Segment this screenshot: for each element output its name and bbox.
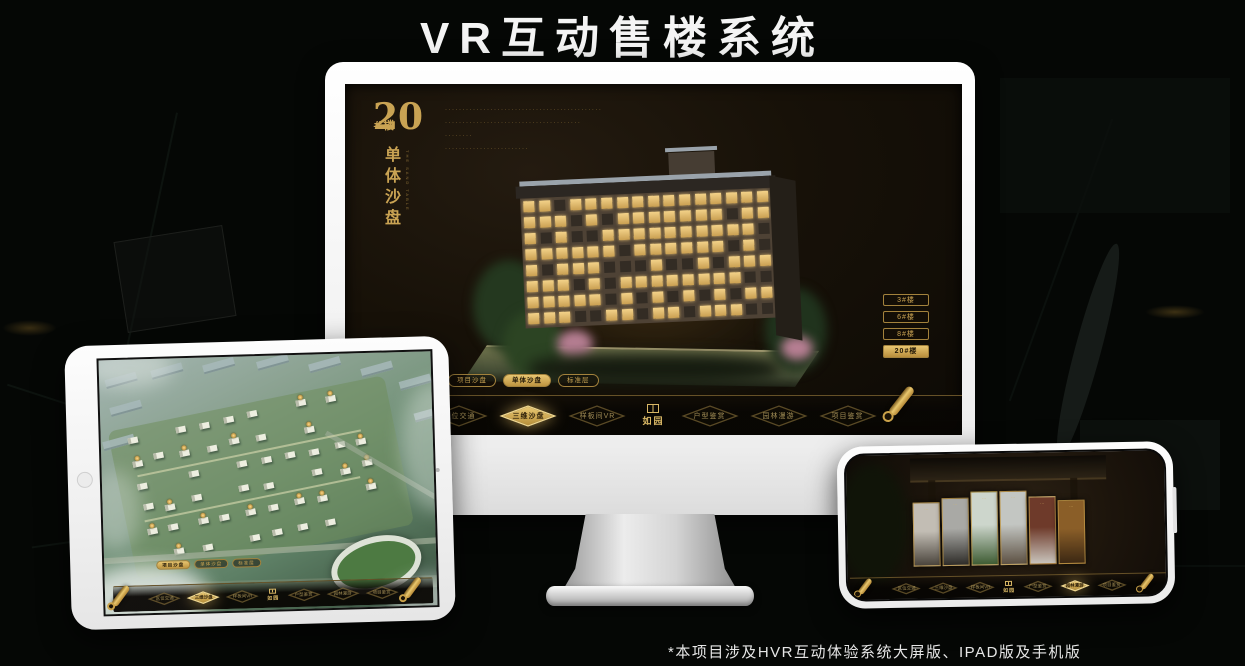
side-button[interactable] <box>1172 487 1177 533</box>
residential-building <box>236 460 247 468</box>
residential-building <box>127 437 138 445</box>
window <box>653 307 664 318</box>
residential-building <box>325 519 336 527</box>
window <box>634 244 645 255</box>
nav-item[interactable]: 三维沙盘 <box>185 588 222 607</box>
nav-item[interactable]: 户型鉴赏 <box>285 585 322 604</box>
window <box>525 233 536 244</box>
window <box>542 264 553 275</box>
poster: VR互动售楼系统 20#楼 单体沙盘 THE SAND TABLE ······… <box>0 0 1245 666</box>
industrial-building <box>360 361 393 378</box>
window <box>663 195 674 206</box>
bg-watermark <box>1145 305 1205 319</box>
window <box>585 198 596 209</box>
window <box>711 209 722 220</box>
residential-building <box>198 517 209 525</box>
residential-building <box>144 503 155 511</box>
nav-item[interactable]: 区位交通 <box>146 589 183 608</box>
window <box>601 198 612 209</box>
window <box>664 211 675 222</box>
nav-item-label: 园林漫游 <box>334 590 352 597</box>
nav-item[interactable]: 样板间VR <box>963 579 998 596</box>
nav-item-label: 三维沙盘 <box>512 411 544 421</box>
building-render <box>465 142 855 397</box>
window <box>746 303 757 314</box>
window <box>589 278 600 289</box>
footnote: *本项目涉及HVR互动体验系统大屏版、IPAD版及手机版 <box>668 641 1081 662</box>
window <box>588 246 599 257</box>
panel-caption: ··· <box>1030 500 1055 505</box>
window <box>760 255 771 266</box>
industrial-building <box>308 356 341 373</box>
nav-item[interactable]: 三维沙盘 <box>496 401 560 431</box>
residential-building <box>308 449 319 457</box>
window <box>665 227 676 238</box>
residential-building <box>164 503 175 511</box>
window <box>757 191 768 202</box>
residential-building <box>137 483 148 491</box>
nav-item[interactable]: 区位交通 <box>889 580 924 597</box>
nav-item-label: 户型鉴赏 <box>694 411 726 421</box>
nav-item[interactable]: 户型鉴赏 <box>1020 578 1055 595</box>
window <box>540 232 551 243</box>
nav-item-label: 项目鉴赏 <box>1103 582 1121 588</box>
sand-table-subtitle-en: THE SAND TABLE <box>405 150 410 260</box>
window <box>573 263 584 274</box>
monitor-stand-base <box>546 586 754 606</box>
panel-caption: ··· <box>971 495 996 500</box>
residential-building <box>191 494 202 502</box>
residential-building <box>325 395 336 403</box>
residential-building <box>153 452 164 460</box>
window <box>622 309 633 320</box>
sub-tab[interactable]: 标准层 <box>232 558 261 568</box>
equipment-scene[interactable]: ··· <box>942 498 970 566</box>
brand-logo-text: 如园 <box>642 414 664 427</box>
residential-building <box>284 451 295 459</box>
residential-building <box>317 495 328 503</box>
window <box>650 243 661 254</box>
window <box>681 242 692 253</box>
window <box>666 243 677 254</box>
window <box>543 296 554 307</box>
window <box>742 207 753 218</box>
nav-item-label: 户型鉴赏 <box>1029 583 1047 589</box>
bg-plaque <box>113 225 236 333</box>
residential-building <box>263 482 274 490</box>
brand-seal-icon <box>647 404 659 413</box>
window <box>527 281 538 292</box>
window <box>620 277 631 288</box>
phone-device: ·················· 区位交通三维沙盘样板间VR如园户型鉴赏园林… <box>837 441 1176 609</box>
brand-logo-text: 如园 <box>1003 586 1015 593</box>
window <box>696 225 707 236</box>
description-line: ······································· <box>445 117 675 130</box>
brand-seal-icon <box>269 589 276 594</box>
window <box>649 227 660 238</box>
residential-building <box>247 410 258 418</box>
nav-item[interactable]: 园林漫游 <box>1057 578 1092 595</box>
panel-caption: ··· <box>1000 495 1025 500</box>
window <box>727 224 738 235</box>
window <box>745 271 756 282</box>
monitor-stand <box>563 514 737 590</box>
brand-logo-text: 如园 <box>267 595 279 602</box>
residential-building <box>262 456 273 464</box>
residential-building <box>223 415 234 423</box>
residential-building <box>203 543 214 551</box>
nav-item-label: 样板间VR <box>971 584 991 590</box>
residential-building <box>168 523 179 531</box>
nav-item-label: 三维沙盘 <box>195 594 213 601</box>
window <box>684 306 695 317</box>
window <box>741 191 752 202</box>
panel-caption: ··· <box>1059 504 1084 509</box>
page-title: VR互动售楼系统 <box>0 2 1245 66</box>
window <box>588 262 599 273</box>
window <box>762 303 773 314</box>
building-button[interactable]: 3#楼 <box>883 294 929 306</box>
window <box>542 280 553 291</box>
industrial-building <box>256 353 289 370</box>
window <box>761 287 772 298</box>
window <box>651 275 662 286</box>
tablet-screen: 项目沙盘单体沙盘标准层 区位交通三维沙盘样板间VR如园户型鉴赏园林漫游项目鉴赏 <box>96 349 439 616</box>
nav-item-label: 样板间VR <box>580 411 616 421</box>
industrial-building <box>202 357 235 374</box>
window <box>744 255 755 266</box>
industrial-building <box>109 400 142 417</box>
brand-logo: 如园 <box>267 589 279 602</box>
window <box>523 201 534 212</box>
residential-building <box>365 482 376 490</box>
brand-logo: 如园 <box>642 404 664 427</box>
sub-tab[interactable]: 标准层 <box>558 374 599 387</box>
residential-building <box>147 528 158 536</box>
window <box>574 295 585 306</box>
window <box>572 247 583 258</box>
window <box>633 212 644 223</box>
cabinet-scene[interactable]: ··· <box>1058 500 1086 564</box>
window <box>712 241 723 252</box>
window <box>526 265 537 276</box>
residential-building <box>272 528 283 536</box>
window <box>682 274 693 285</box>
window <box>758 207 769 218</box>
residential-building <box>298 523 309 531</box>
window <box>637 308 648 319</box>
residential-building <box>207 445 218 453</box>
residential-building <box>175 426 186 434</box>
building-button[interactable]: 20#楼 <box>883 345 929 358</box>
window <box>680 226 691 237</box>
window <box>728 240 739 251</box>
nav-item-label: 区位交通 <box>898 586 916 592</box>
window <box>636 276 647 287</box>
window <box>652 291 663 302</box>
nav-item-label: 园林漫游 <box>1066 583 1084 589</box>
building-model <box>519 171 778 358</box>
residential-building <box>303 426 314 434</box>
window <box>697 257 708 268</box>
window <box>605 293 616 304</box>
window <box>587 230 598 241</box>
window <box>743 223 754 234</box>
window <box>618 229 629 240</box>
residential-building <box>355 438 366 446</box>
window <box>713 257 724 268</box>
main-nav-bar: 区位交通三维沙盘样板间VR如园户型鉴赏园林漫游项目鉴赏 <box>850 572 1168 602</box>
window <box>729 272 740 283</box>
window <box>527 297 538 308</box>
brand-logo: 如园 <box>1003 580 1015 593</box>
sub-tab-row: 项目沙盘单体沙盘标准层 <box>448 374 599 387</box>
window <box>617 213 628 224</box>
residential-building <box>256 434 267 442</box>
window <box>554 200 565 211</box>
window <box>603 246 614 257</box>
window <box>570 199 581 210</box>
nav-item-label: 项目鉴赏 <box>373 589 391 596</box>
window <box>571 215 582 226</box>
garden-scene[interactable]: ··· <box>970 491 998 565</box>
nav-item-label: 三维沙盘 <box>935 585 953 591</box>
window <box>731 304 742 315</box>
window <box>743 239 754 250</box>
window <box>556 232 567 243</box>
window <box>730 288 741 299</box>
window <box>726 192 737 203</box>
sub-tab[interactable]: 项目沙盘 <box>448 374 496 387</box>
phone-screen: ·················· 区位交通三维沙盘样板间VR如园户型鉴赏园林… <box>844 448 1169 602</box>
interior-scene[interactable]: ··· <box>913 502 941 566</box>
window <box>683 290 694 301</box>
window <box>559 311 570 322</box>
window <box>558 295 569 306</box>
window <box>746 287 757 298</box>
window <box>648 196 659 207</box>
window <box>557 264 568 275</box>
window <box>524 217 535 228</box>
nav-item[interactable]: 户型鉴赏 <box>678 401 742 431</box>
panel-caption: ··· <box>943 502 968 507</box>
nav-item-label: 项目鉴赏 <box>832 411 864 421</box>
tablet-device: 项目沙盘单体沙盘标准层 区位交通三维沙盘样板间VR如园户型鉴赏园林漫游项目鉴赏 <box>64 336 456 631</box>
window <box>586 214 597 225</box>
nav-item-label: 样板间VR <box>233 593 253 600</box>
description-line: ········································… <box>445 104 675 117</box>
building-marker[interactable] <box>305 421 311 427</box>
window <box>539 216 550 227</box>
camera-dot <box>436 468 440 472</box>
window <box>666 259 677 270</box>
window <box>602 214 613 225</box>
window <box>571 231 582 242</box>
window <box>682 258 693 269</box>
residential-building <box>180 449 191 457</box>
nav-item[interactable]: 园林漫游 <box>324 584 361 603</box>
building-facade <box>520 188 777 329</box>
brand-seal-icon <box>1005 580 1012 585</box>
window <box>634 228 645 239</box>
window <box>710 193 721 204</box>
window <box>528 313 539 324</box>
window <box>555 216 566 227</box>
window <box>668 291 679 302</box>
building-scene[interactable]: ··· <box>999 491 1027 565</box>
residential-building <box>219 514 230 522</box>
residential-building <box>250 534 261 542</box>
sub-tab[interactable]: 单体沙盘 <box>503 374 551 387</box>
building-number-heading: 20#楼 <box>373 96 395 138</box>
window <box>544 312 555 323</box>
window <box>617 197 628 208</box>
nav-item-label: 园林漫游 <box>763 411 795 421</box>
courtyard-scene[interactable]: ··· <box>1029 496 1057 564</box>
nav-item[interactable]: 项目鉴赏 <box>816 401 880 431</box>
residential-building <box>200 422 211 430</box>
nav-item-label: 户型鉴赏 <box>295 591 313 598</box>
window <box>699 305 710 316</box>
residential-building <box>340 467 351 475</box>
window <box>525 249 536 260</box>
nav-item[interactable]: 三维沙盘 <box>926 580 961 597</box>
window <box>715 305 726 316</box>
bg-watermark <box>2 320 57 336</box>
window <box>695 209 706 220</box>
sub-tab[interactable]: 项目沙盘 <box>156 560 190 570</box>
nav-item[interactable]: 项目鉴赏 <box>1094 577 1129 594</box>
residential-building <box>188 470 199 478</box>
sand-table-title: 单体沙盘 <box>379 146 403 266</box>
panel-caption: ··· <box>914 506 939 511</box>
window <box>667 275 678 286</box>
window <box>758 223 769 234</box>
window <box>602 230 613 241</box>
window <box>760 271 771 282</box>
window <box>714 273 725 284</box>
window <box>636 292 647 303</box>
window <box>697 241 708 252</box>
window <box>621 293 632 304</box>
building-marker[interactable] <box>327 390 333 396</box>
window <box>558 280 569 291</box>
window <box>668 307 679 318</box>
window <box>606 309 617 320</box>
building-selector: 3#楼6#楼8#楼20#楼 <box>883 294 933 363</box>
window <box>698 273 709 284</box>
nav-item[interactable]: 园林漫游 <box>747 401 811 431</box>
window <box>541 248 552 259</box>
nav-item[interactable]: 样板间VR <box>565 401 629 431</box>
window <box>556 248 567 259</box>
nav-item[interactable]: 项目鉴赏 <box>363 583 400 602</box>
building-button[interactable]: 6#楼 <box>883 311 929 323</box>
window <box>651 259 662 270</box>
residential-building <box>132 460 143 468</box>
residential-building <box>312 468 323 476</box>
window <box>712 225 723 236</box>
window <box>632 196 643 207</box>
window <box>726 208 737 219</box>
window <box>619 261 630 272</box>
window <box>619 245 630 256</box>
building-marker[interactable] <box>367 478 373 484</box>
window <box>679 194 690 205</box>
window <box>714 289 725 300</box>
window <box>635 260 646 271</box>
residential-building <box>296 399 307 407</box>
residential-building <box>294 497 305 505</box>
window <box>573 279 584 290</box>
home-button[interactable] <box>77 472 93 488</box>
window <box>649 211 660 222</box>
bg-photo-block <box>1000 78 1230 213</box>
building-button[interactable]: 8#楼 <box>883 328 929 340</box>
window <box>605 277 616 288</box>
residential-building <box>268 504 279 512</box>
window <box>680 210 691 221</box>
residential-building <box>228 438 239 446</box>
window <box>604 261 615 272</box>
nav-item-label: 区位交通 <box>156 595 174 602</box>
window <box>695 193 706 204</box>
sub-tab[interactable]: 单体沙盘 <box>194 559 228 569</box>
window <box>590 294 601 305</box>
window <box>575 311 586 322</box>
nav-item[interactable]: 样板间VR <box>224 587 261 606</box>
residential-building <box>238 484 249 492</box>
window <box>759 239 770 250</box>
window <box>539 200 550 211</box>
window <box>729 256 740 267</box>
window <box>590 310 601 321</box>
window <box>699 289 710 300</box>
residential-building <box>245 508 256 516</box>
